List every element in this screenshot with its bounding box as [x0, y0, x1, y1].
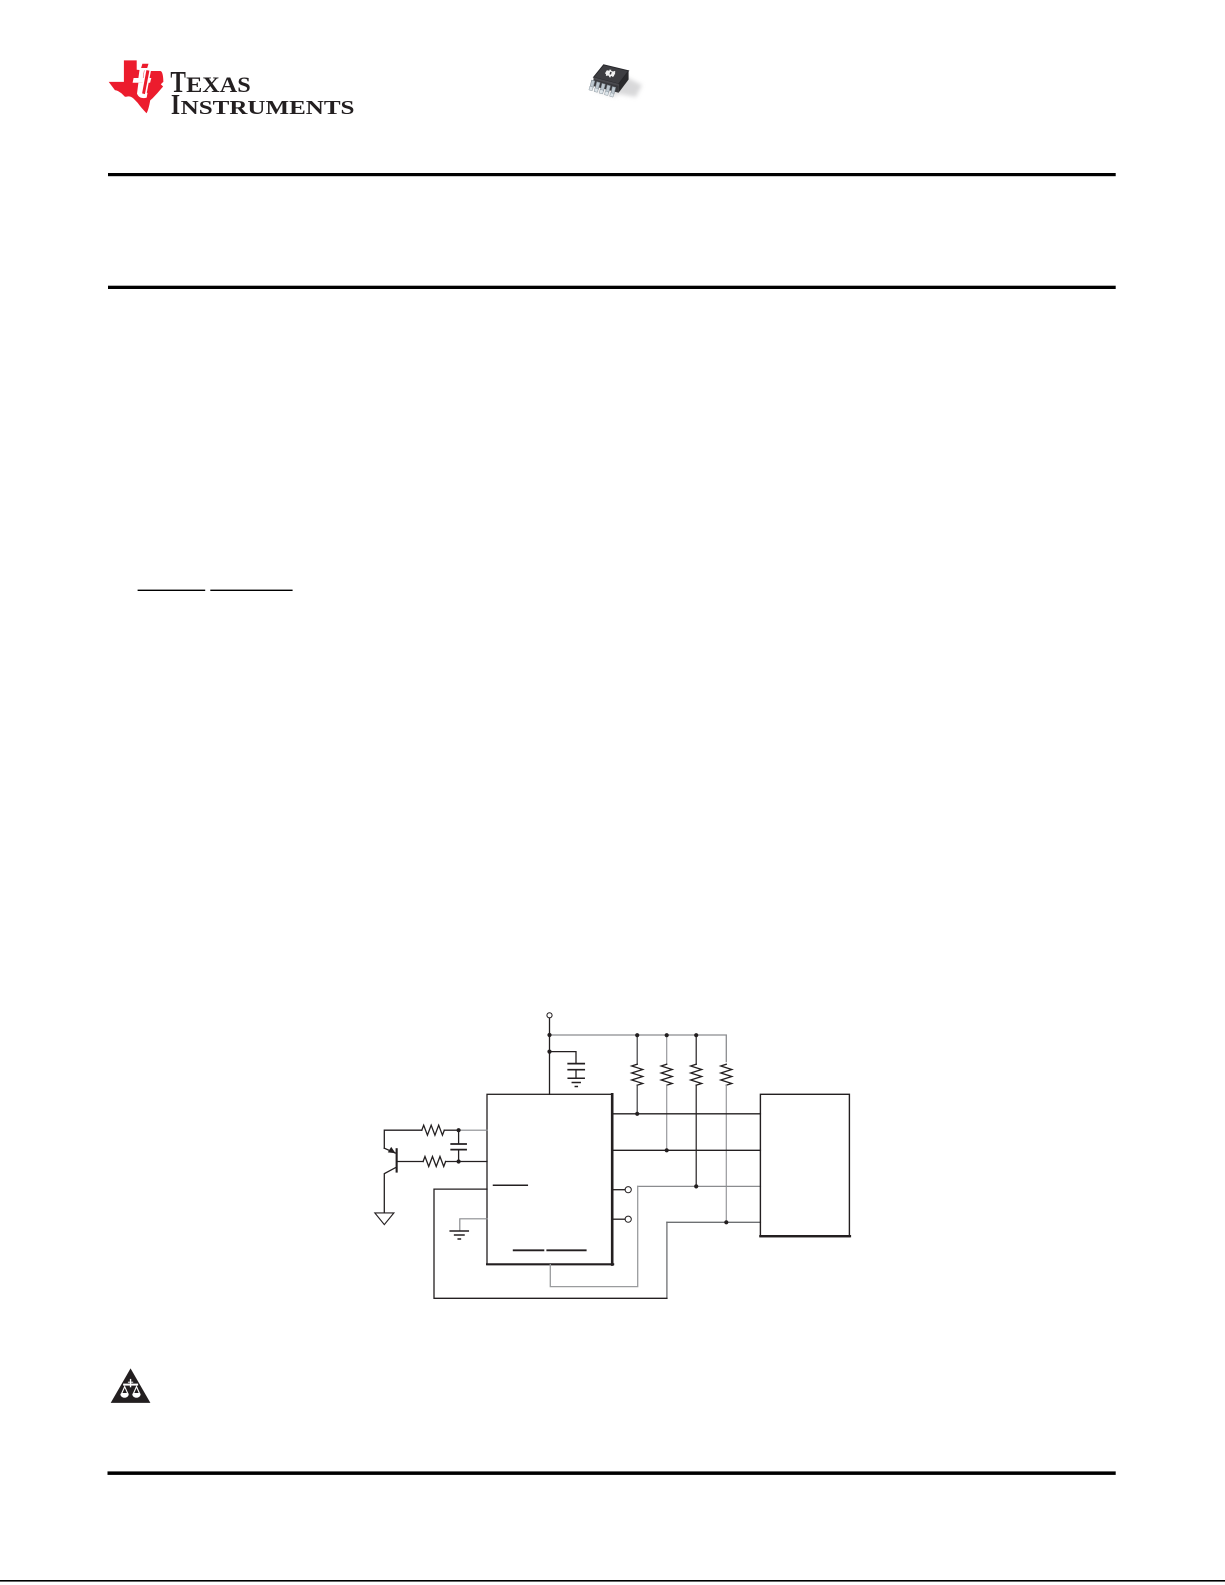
svg-text:I: I: [171, 89, 180, 121]
svg-text:EXAS: EXAS: [186, 72, 251, 97]
svg-text:NSTRUMENTS: NSTRUMENTS: [181, 97, 355, 119]
